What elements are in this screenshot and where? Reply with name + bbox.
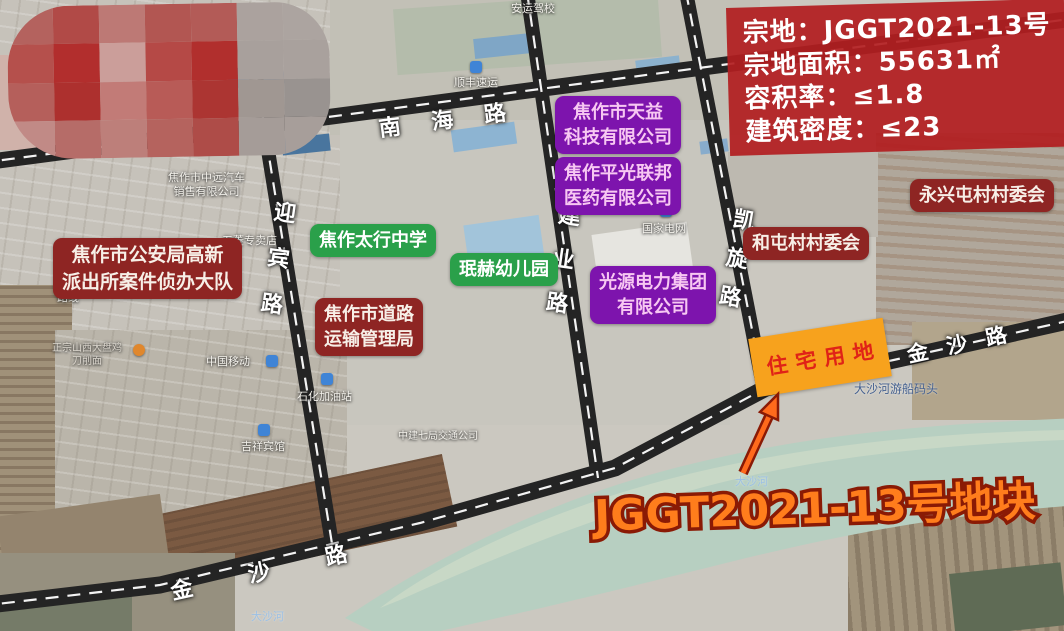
map-texture-bl-dark (0, 595, 132, 631)
mosaic-cell (239, 117, 286, 156)
mosaic-cell (283, 39, 330, 78)
mosaic-cell (147, 118, 194, 157)
poi-label-road-transport-bureau: 焦作市道路 运输管理局 (315, 298, 423, 356)
mosaic-cell (237, 40, 284, 79)
poi-label-pingguang-pharma: 焦作平光联邦 医药有限公司 (555, 157, 681, 215)
map-label-dashahe-2: 大沙河 (251, 610, 284, 624)
mosaic-cell (237, 2, 284, 41)
poi-label-tianyi-tech: 焦作市天益 科技有限公司 (555, 96, 681, 154)
mosaic-cell (99, 43, 146, 82)
map-label-boat-dock: 大沙河游船码头 (854, 382, 938, 398)
poi-label-yongxingtun-committee: 永兴屯村村委会 (910, 179, 1054, 212)
map-label-driving-school: 安运驾校 (511, 2, 555, 16)
mosaic-cell (192, 79, 239, 118)
parcel-info-box: 宗地：JGGT2021-13号 宗地面积：55631㎡ 容积率：≤1.8 建筑密… (726, 0, 1064, 156)
poi-marker-icon (321, 373, 333, 385)
map-label-construction-co: 中建七局交通公司 (398, 430, 478, 443)
mosaic-cell (99, 4, 146, 43)
mosaic-cell (53, 43, 100, 82)
map-label-state-grid: 国家电网 (642, 222, 686, 236)
arrow-head (760, 394, 778, 420)
mosaic-cell (191, 3, 238, 42)
arrow-line-outline (743, 414, 770, 473)
map-label-auto-dealer: 焦作市中远汽车 销售有限公司 (168, 171, 245, 200)
mosaic-cell (101, 119, 148, 158)
mosaic-cell (146, 80, 193, 119)
mosaic-cell (284, 78, 331, 117)
mosaic-cell (55, 120, 102, 159)
mosaic-cell (7, 44, 54, 83)
mosaic-cell (193, 118, 240, 157)
poi-marker-icon (133, 344, 145, 356)
redaction-mosaic (7, 1, 332, 160)
mosaic-cell (8, 83, 55, 122)
map-texture-village-right (876, 133, 1064, 345)
map-label-shunfeng: 顺丰速运 (454, 76, 498, 90)
poi-marker-icon (258, 424, 270, 436)
mosaic-cell (191, 41, 238, 80)
mosaic-cell (53, 5, 100, 44)
poi-label-kindergarten: 珉赫幼儿园 (450, 253, 558, 286)
poi-marker-icon (266, 355, 278, 367)
mosaic-cell (100, 81, 147, 120)
poi-label-taihang-school: 焦作太行中学 (310, 224, 436, 257)
map-texture-rb-dark (949, 562, 1064, 631)
map-label-gas-station: 石化加油站 (297, 390, 352, 404)
mosaic-cell (54, 82, 101, 121)
map-label-china-mobile: 中国移动 (206, 355, 250, 369)
parcel-label: 住宅用地 (756, 333, 883, 382)
mosaic-cell (238, 78, 285, 117)
poi-label-hetun-committee: 和屯村村委会 (743, 227, 869, 260)
arrow-line (743, 412, 771, 473)
map-label-restaurant: 正宗山西大盘鸡 刀削面 (52, 342, 122, 368)
map-canvas: 南海路 迎宾路 建业路 凯旋路 金沙路 金沙路 安运驾校 顺丰速运 焦作市中远汽… (0, 0, 1064, 631)
poi-label-guangyuan-power: 光源电力集团 有限公司 (590, 266, 716, 324)
poi-marker-icon (470, 61, 482, 73)
mosaic-cell (145, 42, 192, 81)
poi-label-police-station: 焦作市公安局高新 派出所案件侦办大队 (53, 238, 242, 299)
map-label-hotel: 吉祥宾馆 (241, 440, 285, 454)
mosaic-cell (145, 4, 192, 43)
